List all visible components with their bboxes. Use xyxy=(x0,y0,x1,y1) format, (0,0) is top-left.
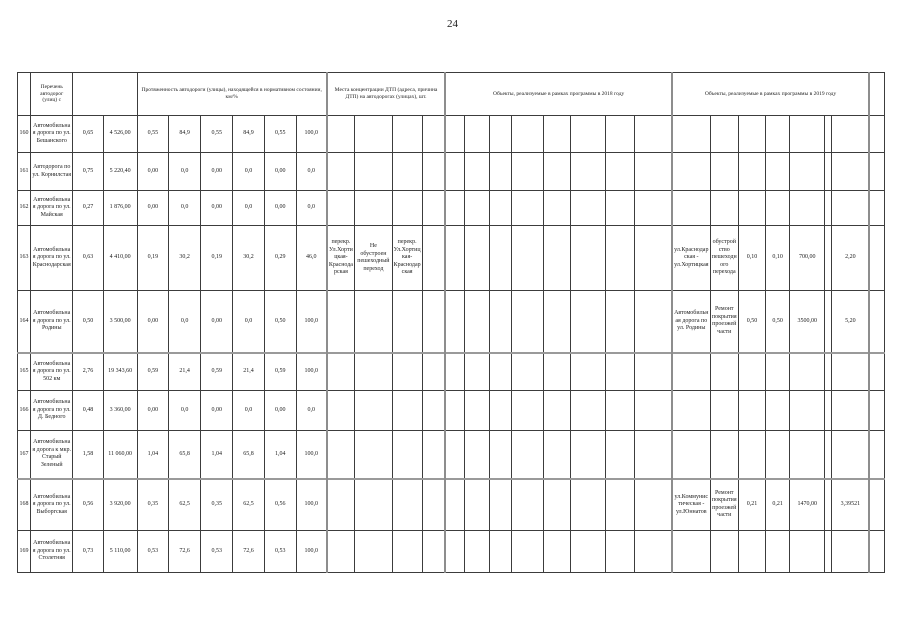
cell-norm-km-3: 0,53 xyxy=(264,531,296,573)
cell-norm-pct-2: 30,2 xyxy=(233,226,264,291)
road-row-162: 162Автомобильная дорога по ул. Майская0,… xyxy=(18,191,885,226)
cell-2018-6 xyxy=(570,431,605,479)
cell-2019-total xyxy=(832,391,869,431)
road-row-161: 161Автодорога по ул. Корнилстая0,755 220… xyxy=(18,153,885,191)
header-blank-last xyxy=(869,73,884,116)
cell-2018-2 xyxy=(465,191,490,226)
cell-2019-work xyxy=(710,116,738,153)
cell-2018-3 xyxy=(490,531,512,573)
cell-dtp-location xyxy=(327,191,355,226)
cell-norm-km-1: 1,04 xyxy=(137,431,168,479)
cell-dtp-blank xyxy=(422,226,445,291)
cell-norm-km-1: 0,59 xyxy=(137,353,168,391)
cell-2019-blank xyxy=(825,431,832,479)
cell-norm-pct-2: 0,0 xyxy=(233,153,264,191)
cell-row-number: 167 xyxy=(18,431,31,479)
cell-length-km: 0,48 xyxy=(73,391,103,431)
cell-2019-v1 xyxy=(738,353,765,391)
cell-norm-km-1: 0,55 xyxy=(137,116,168,153)
cell-2018-7 xyxy=(605,226,634,291)
cell-norm-km-2: 1,04 xyxy=(201,431,233,479)
cell-2019-blank xyxy=(825,531,832,573)
cell-norm-pct-2: 65,8 xyxy=(233,431,264,479)
cell-dtp-location-2 xyxy=(392,116,422,153)
cell-tail xyxy=(869,226,884,291)
cell-2019-v2 xyxy=(766,191,790,226)
cell-road-name: Автомобильная дорога по ул. Столетняя xyxy=(31,531,73,573)
cell-norm-km-2: 0,00 xyxy=(201,191,233,226)
cell-norm-pct-2: 62,5 xyxy=(233,479,264,531)
cell-2019-v1 xyxy=(738,431,765,479)
cell-2019-cost: 1470,00 xyxy=(790,479,825,531)
cell-norm-pct-1: 0,0 xyxy=(168,291,200,353)
cell-2018-1 xyxy=(445,391,464,431)
cell-2018-1 xyxy=(445,431,464,479)
cell-2019-cost xyxy=(790,116,825,153)
cell-norm-pct-1: 84,9 xyxy=(168,116,200,153)
cell-tail xyxy=(869,479,884,531)
cell-norm-km-3: 0,00 xyxy=(264,153,296,191)
cell-dtp-cause xyxy=(355,531,392,573)
cell-road-name: Автомобильная дорога по ул. Родины xyxy=(31,291,73,353)
cell-2019-total xyxy=(832,191,869,226)
road-row-169: 169Автомобильная дорога по ул. Столетняя… xyxy=(18,531,885,573)
cell-2018-2 xyxy=(465,391,490,431)
cell-row-number: 161 xyxy=(18,153,31,191)
cell-2018-7 xyxy=(605,153,634,191)
cell-2019-total xyxy=(832,531,869,573)
road-row-167: 167Автомобильная дорога к мкр. Старый Зе… xyxy=(18,431,885,479)
cell-2018-1 xyxy=(445,191,464,226)
cell-2018-2 xyxy=(465,291,490,353)
cell-dtp-blank xyxy=(422,431,445,479)
cell-2018-2 xyxy=(465,431,490,479)
cell-row-number: 160 xyxy=(18,116,31,153)
cell-length-km: 0,65 xyxy=(73,116,103,153)
cell-norm-km-3: 0,55 xyxy=(264,116,296,153)
cell-dtp-cause xyxy=(355,391,392,431)
cell-2019-blank xyxy=(825,226,832,291)
cell-row-number: 169 xyxy=(18,531,31,573)
cell-tail xyxy=(869,116,884,153)
cell-dtp-location-2 xyxy=(392,353,422,391)
cell-2018-5 xyxy=(543,116,570,153)
cell-dtp-blank xyxy=(422,191,445,226)
cell-dtp-blank xyxy=(422,116,445,153)
cell-dtp-location-2 xyxy=(392,291,422,353)
cell-2018-8 xyxy=(635,153,672,191)
cell-dtp-cause: Не обустроен пешеходный переход xyxy=(355,226,392,291)
cell-norm-km-2: 0,53 xyxy=(201,531,233,573)
cell-dtp-location xyxy=(327,391,355,431)
cell-2019-v1 xyxy=(738,116,765,153)
cell-2019-v2: 0,21 xyxy=(766,479,790,531)
cell-norm-pct-2: 21,4 xyxy=(233,353,264,391)
cell-2018-8 xyxy=(635,353,672,391)
cell-2019-work xyxy=(710,191,738,226)
cell-road-name: Автомобильная дорога по ул. Д. Бедного xyxy=(31,391,73,431)
cell-norm-km-3: 0,59 xyxy=(264,353,296,391)
cell-tail xyxy=(869,391,884,431)
cell-dtp-blank xyxy=(422,531,445,573)
cell-2019-blank xyxy=(825,391,832,431)
cell-road-name: Автодорога по ул. Корнилстая xyxy=(31,153,73,191)
road-row-163: 163Автомобильная дорога по ул. Краснодар… xyxy=(18,226,885,291)
cell-norm-pct-3: 100,0 xyxy=(296,531,326,573)
cell-dtp-cause xyxy=(355,353,392,391)
cell-length-km: 2,76 xyxy=(73,353,103,391)
cell-road-name: Автомобильная дорога по ул. 502 км xyxy=(31,353,73,391)
cell-area-sqm: 3 360,00 xyxy=(103,391,137,431)
cell-2019-total xyxy=(832,353,869,391)
cell-2019-work xyxy=(710,391,738,431)
cell-2018-1 xyxy=(445,479,464,531)
cell-2019-cost xyxy=(790,391,825,431)
cell-norm-pct-1: 21,4 xyxy=(168,353,200,391)
cell-tail xyxy=(869,191,884,226)
road-row-166: 166Автомобильная дорога по ул. Д. Бедног… xyxy=(18,391,885,431)
cell-norm-km-2: 0,00 xyxy=(201,391,233,431)
cell-2018-1 xyxy=(445,226,464,291)
cell-norm-km-2: 0,59 xyxy=(201,353,233,391)
cell-2019-object xyxy=(672,116,710,153)
cell-2018-5 xyxy=(543,431,570,479)
cell-norm-pct-3: 0,0 xyxy=(296,191,326,226)
cell-2018-7 xyxy=(605,191,634,226)
cell-norm-pct-1: 0,0 xyxy=(168,191,200,226)
cell-norm-km-1: 0,00 xyxy=(137,153,168,191)
cell-2019-v2 xyxy=(766,391,790,431)
cell-row-number: 166 xyxy=(18,391,31,431)
cell-norm-pct-3: 100,0 xyxy=(296,479,326,531)
cell-2018-8 xyxy=(635,191,672,226)
cell-norm-pct-1: 72,6 xyxy=(168,531,200,573)
cell-2018-6 xyxy=(570,153,605,191)
cell-2018-8 xyxy=(635,116,672,153)
cell-2019-v1 xyxy=(738,153,765,191)
cell-norm-km-2: 0,00 xyxy=(201,291,233,353)
header-normative-length: Протяженность автодороги (улицы), находя… xyxy=(137,73,326,116)
cell-2019-total xyxy=(832,153,869,191)
cell-norm-pct-3: 100,0 xyxy=(296,431,326,479)
cell-2019-object: ул.Краснодарская - ул.Хортицкая xyxy=(672,226,710,291)
cell-norm-pct-1: 65,8 xyxy=(168,431,200,479)
cell-2019-v1: 0,21 xyxy=(738,479,765,531)
cell-2018-4 xyxy=(512,191,543,226)
cell-dtp-blank xyxy=(422,479,445,531)
cell-2019-v1 xyxy=(738,391,765,431)
cell-2019-total: 2,20 xyxy=(832,226,869,291)
cell-2018-7 xyxy=(605,531,634,573)
cell-norm-km-3: 0,00 xyxy=(264,191,296,226)
cell-2019-cost xyxy=(790,353,825,391)
cell-2018-4 xyxy=(512,531,543,573)
cell-2018-7 xyxy=(605,291,634,353)
cell-2019-work: обустройство пешеходного перехода xyxy=(710,226,738,291)
cell-2018-4 xyxy=(512,391,543,431)
cell-2019-cost xyxy=(790,191,825,226)
cell-norm-km-3: 1,04 xyxy=(264,431,296,479)
cell-2018-2 xyxy=(465,153,490,191)
cell-2018-5 xyxy=(543,226,570,291)
cell-2018-3 xyxy=(490,353,512,391)
cell-2019-v2 xyxy=(766,353,790,391)
page-number: 24 xyxy=(0,18,905,30)
cell-2018-1 xyxy=(445,291,464,353)
cell-tail xyxy=(869,353,884,391)
cell-2019-work: Ремонт покрытия проезжей части xyxy=(710,291,738,353)
cell-norm-pct-3: 100,0 xyxy=(296,291,326,353)
cell-norm-km-2: 0,19 xyxy=(201,226,233,291)
cell-2019-object xyxy=(672,191,710,226)
cell-2019-total: 5,20 xyxy=(832,291,869,353)
cell-dtp-blank xyxy=(422,153,445,191)
cell-row-number: 165 xyxy=(18,353,31,391)
cell-area-sqm: 1 876,00 xyxy=(103,191,137,226)
cell-2019-total xyxy=(832,431,869,479)
cell-2018-2 xyxy=(465,353,490,391)
cell-dtp-cause xyxy=(355,191,392,226)
cell-norm-km-3: 0,29 xyxy=(264,226,296,291)
header-objects-2018: Объекты, реализуемые в рамках программы … xyxy=(445,73,672,116)
cell-area-sqm: 4 526,00 xyxy=(103,116,137,153)
cell-2019-v2: 0,50 xyxy=(766,291,790,353)
cell-road-name: Автомобильная дорога по ул. Майская xyxy=(31,191,73,226)
cell-row-number: 168 xyxy=(18,479,31,531)
cell-2018-7 xyxy=(605,479,634,531)
cell-2019-cost: 3500,00 xyxy=(790,291,825,353)
cell-2019-object: Автомобильная дорога по ул. Родины xyxy=(672,291,710,353)
road-row-165: 165Автомобильная дорога по ул. 502 км2,7… xyxy=(18,353,885,391)
cell-dtp-location-2: перекр. Ул.Хортицкая-Краснодарская xyxy=(392,226,422,291)
cell-dtp-location xyxy=(327,531,355,573)
cell-norm-pct-3: 0,0 xyxy=(296,391,326,431)
cell-2018-7 xyxy=(605,431,634,479)
cell-2019-v1: 0,10 xyxy=(738,226,765,291)
cell-2018-3 xyxy=(490,116,512,153)
cell-area-sqm: 3 500,00 xyxy=(103,291,137,353)
cell-2018-8 xyxy=(635,531,672,573)
cell-dtp-blank xyxy=(422,353,445,391)
cell-norm-km-1: 0,00 xyxy=(137,291,168,353)
cell-norm-pct-1: 30,2 xyxy=(168,226,200,291)
cell-2019-total xyxy=(832,116,869,153)
cell-dtp-location-2 xyxy=(392,191,422,226)
cell-2019-cost: 700,00 xyxy=(790,226,825,291)
cell-2018-5 xyxy=(543,353,570,391)
cell-2019-object xyxy=(672,431,710,479)
cell-2019-v2 xyxy=(766,116,790,153)
cell-2018-4 xyxy=(512,291,543,353)
header-objects-2019: Объекты, реализуемые в рамках программы … xyxy=(672,73,869,116)
cell-road-name: Автомобильная дорога по ул. Выборгская xyxy=(31,479,73,531)
cell-2019-v2 xyxy=(766,153,790,191)
cell-dtp-cause xyxy=(355,479,392,531)
cell-2019-object xyxy=(672,531,710,573)
cell-2019-cost xyxy=(790,153,825,191)
cell-norm-km-2: 0,00 xyxy=(201,153,233,191)
cell-dtp-location: перекр. Ул.Хортицкая-Краснодарская xyxy=(327,226,355,291)
cell-norm-pct-1: 62,5 xyxy=(168,479,200,531)
cell-2018-6 xyxy=(570,116,605,153)
cell-length-km: 1,58 xyxy=(73,431,103,479)
cell-norm-km-1: 0,53 xyxy=(137,531,168,573)
cell-2018-1 xyxy=(445,353,464,391)
cell-2018-5 xyxy=(543,191,570,226)
cell-2018-8 xyxy=(635,479,672,531)
cell-norm-km-1: 0,35 xyxy=(137,479,168,531)
cell-2018-5 xyxy=(543,531,570,573)
cell-row-number: 162 xyxy=(18,191,31,226)
cell-2019-total: 3,39521 xyxy=(832,479,869,531)
cell-area-sqm: 11 060,00 xyxy=(103,431,137,479)
cell-norm-km-2: 0,55 xyxy=(201,116,233,153)
cell-tail xyxy=(869,531,884,573)
cell-2018-8 xyxy=(635,226,672,291)
cell-norm-pct-2: 0,0 xyxy=(233,191,264,226)
cell-2019-cost xyxy=(790,531,825,573)
cell-2019-cost xyxy=(790,431,825,479)
cell-tail xyxy=(869,291,884,353)
cell-2018-7 xyxy=(605,391,634,431)
cell-2018-3 xyxy=(490,153,512,191)
cell-2018-8 xyxy=(635,431,672,479)
cell-2019-blank xyxy=(825,353,832,391)
cell-dtp-cause xyxy=(355,116,392,153)
cell-2018-3 xyxy=(490,391,512,431)
cell-norm-km-3: 0,50 xyxy=(264,291,296,353)
cell-2019-object xyxy=(672,153,710,191)
header-accident-spots: Места концентрации ДТП (адреса, причина … xyxy=(327,73,446,116)
cell-dtp-location-2 xyxy=(392,531,422,573)
cell-2018-8 xyxy=(635,291,672,353)
cell-2019-work xyxy=(710,153,738,191)
cell-2018-6 xyxy=(570,291,605,353)
cell-area-sqm: 19 343,60 xyxy=(103,353,137,391)
cell-norm-pct-2: 72,6 xyxy=(233,531,264,573)
cell-dtp-location-2 xyxy=(392,153,422,191)
cell-length-km: 0,27 xyxy=(73,191,103,226)
cell-length-km: 0,56 xyxy=(73,479,103,531)
cell-dtp-blank xyxy=(422,291,445,353)
cell-2018-1 xyxy=(445,116,464,153)
cell-norm-km-3: 0,56 xyxy=(264,479,296,531)
cell-2018-3 xyxy=(490,431,512,479)
cell-2019-object xyxy=(672,391,710,431)
cell-norm-pct-2: 0,0 xyxy=(233,291,264,353)
cell-length-km: 0,75 xyxy=(73,153,103,191)
cell-2018-7 xyxy=(605,353,634,391)
cell-2018-2 xyxy=(465,531,490,573)
cell-row-number: 164 xyxy=(18,291,31,353)
cell-area-sqm: 5 110,00 xyxy=(103,531,137,573)
cell-area-sqm: 5 220,40 xyxy=(103,153,137,191)
cell-dtp-location-2 xyxy=(392,391,422,431)
cell-2018-2 xyxy=(465,116,490,153)
cell-2018-1 xyxy=(445,153,464,191)
cell-2018-5 xyxy=(543,479,570,531)
cell-dtp-location xyxy=(327,153,355,191)
cell-length-km: 0,63 xyxy=(73,226,103,291)
cell-2018-3 xyxy=(490,226,512,291)
cell-2019-v1 xyxy=(738,531,765,573)
cell-2019-v2: 0,10 xyxy=(766,226,790,291)
cell-dtp-cause xyxy=(355,291,392,353)
cell-2018-2 xyxy=(465,479,490,531)
cell-2019-blank xyxy=(825,191,832,226)
cell-area-sqm: 3 920,00 xyxy=(103,479,137,531)
cell-2018-5 xyxy=(543,391,570,431)
cell-2019-work: Ремонт покрытия проезжей части xyxy=(710,479,738,531)
cell-2018-4 xyxy=(512,479,543,531)
cell-row-number: 163 xyxy=(18,226,31,291)
road-row-168: 168Автомобильная дорога по ул. Выборгска… xyxy=(18,479,885,531)
cell-2018-3 xyxy=(490,291,512,353)
cell-area-sqm: 4 410,00 xyxy=(103,226,137,291)
cell-2019-work xyxy=(710,431,738,479)
header-metrics-blank xyxy=(73,73,137,116)
cell-2018-6 xyxy=(570,191,605,226)
cell-dtp-location-2 xyxy=(392,431,422,479)
cell-2018-1 xyxy=(445,531,464,573)
cell-2019-blank xyxy=(825,153,832,191)
cell-2018-4 xyxy=(512,153,543,191)
cell-norm-km-3: 0,00 xyxy=(264,391,296,431)
cell-2019-blank xyxy=(825,291,832,353)
cell-road-name: Автомобильная дорога по ул. Бешанского xyxy=(31,116,73,153)
header-row-number xyxy=(18,73,31,116)
cell-dtp-blank xyxy=(422,391,445,431)
cell-2018-8 xyxy=(635,391,672,431)
cell-norm-pct-3: 100,0 xyxy=(296,353,326,391)
cell-2018-3 xyxy=(490,191,512,226)
cell-2018-6 xyxy=(570,531,605,573)
cell-2018-4 xyxy=(512,226,543,291)
cell-2018-5 xyxy=(543,153,570,191)
cell-dtp-location xyxy=(327,291,355,353)
cell-2019-blank xyxy=(825,479,832,531)
table-header-row: Перечень автодорог (улиц) с Протяженност… xyxy=(18,73,885,116)
cell-road-name: Автомобильная дорога к мкр. Старый Зелен… xyxy=(31,431,73,479)
cell-2019-work xyxy=(710,531,738,573)
cell-2018-6 xyxy=(570,226,605,291)
cell-road-name: Автомобильная дорога по ул. Краснодарска… xyxy=(31,226,73,291)
cell-dtp-location xyxy=(327,431,355,479)
cell-2019-object xyxy=(672,353,710,391)
cell-2018-2 xyxy=(465,226,490,291)
cell-2019-v1 xyxy=(738,191,765,226)
cell-2018-5 xyxy=(543,291,570,353)
cell-dtp-cause xyxy=(355,153,392,191)
cell-2018-3 xyxy=(490,479,512,531)
cell-norm-pct-3: 100,0 xyxy=(296,116,326,153)
cell-2018-4 xyxy=(512,431,543,479)
cell-2018-7 xyxy=(605,116,634,153)
cell-2019-work xyxy=(710,353,738,391)
cell-norm-pct-2: 0,0 xyxy=(233,391,264,431)
cell-2018-6 xyxy=(570,479,605,531)
cell-2019-v2 xyxy=(766,431,790,479)
cell-2019-v1: 0,50 xyxy=(738,291,765,353)
cell-2019-v2 xyxy=(766,531,790,573)
cell-tail xyxy=(869,431,884,479)
cell-2018-4 xyxy=(512,353,543,391)
cell-dtp-location xyxy=(327,479,355,531)
cell-2018-6 xyxy=(570,353,605,391)
road-row-164: 164Автомобильная дорога по ул. Родины0,5… xyxy=(18,291,885,353)
cell-norm-pct-1: 0,0 xyxy=(168,391,200,431)
cell-norm-km-1: 0,00 xyxy=(137,191,168,226)
